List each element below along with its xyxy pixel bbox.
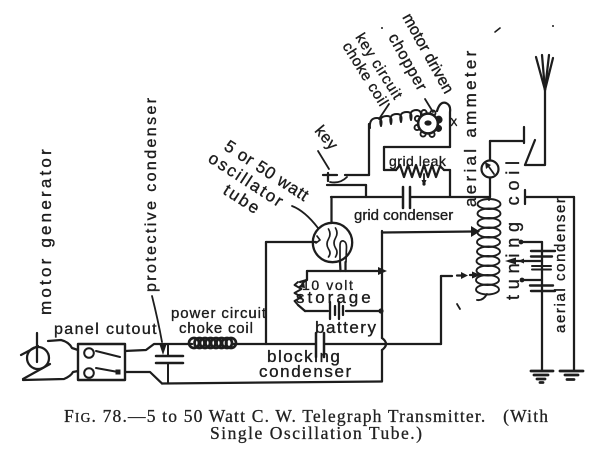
svg-text:panel cutout: panel cutout: [54, 321, 158, 338]
svg-text:motor generator: motor generator: [36, 146, 55, 315]
svg-text:choke coil: choke coil: [179, 320, 254, 337]
svg-text:grid condenser: grid condenser: [354, 207, 453, 224]
svg-text:condenser: condenser: [259, 362, 353, 381]
svg-text:tuning coil: tuning coil: [503, 155, 523, 300]
svg-text:aerial condenser: aerial condenser: [552, 196, 569, 333]
svg-text:Single Oscillation Tube.): Single Oscillation Tube.): [210, 423, 422, 443]
svg-text:battery: battery: [315, 318, 377, 337]
svg-text:key: key: [311, 123, 341, 154]
svg-text:grid leak: grid leak: [389, 153, 447, 169]
svg-text:storage: storage: [296, 288, 374, 307]
svg-text:aerial ammeter: aerial ammeter: [461, 47, 480, 207]
svg-text:protective condenser: protective condenser: [143, 95, 160, 292]
